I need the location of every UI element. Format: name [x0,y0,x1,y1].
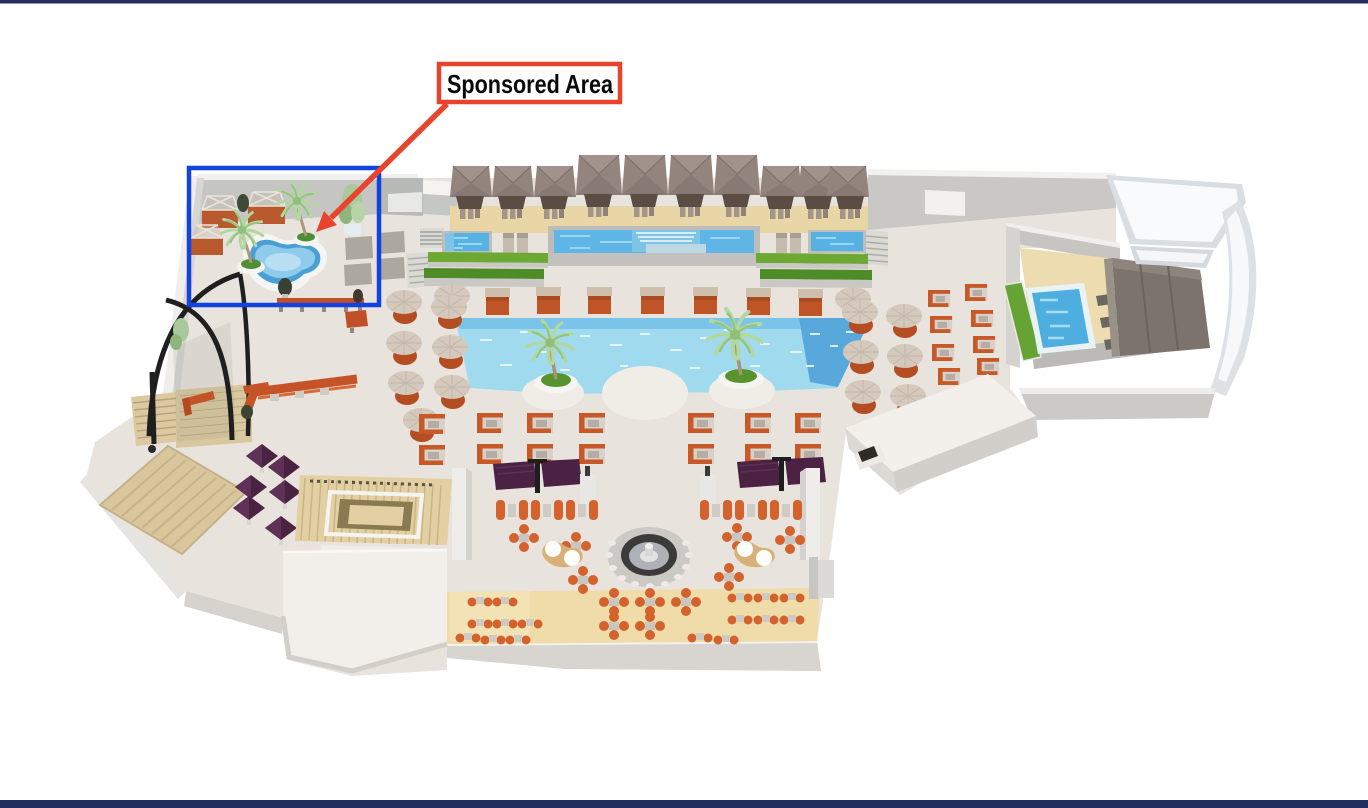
svg-text:Sponsored Area: Sponsored Area [447,69,613,99]
